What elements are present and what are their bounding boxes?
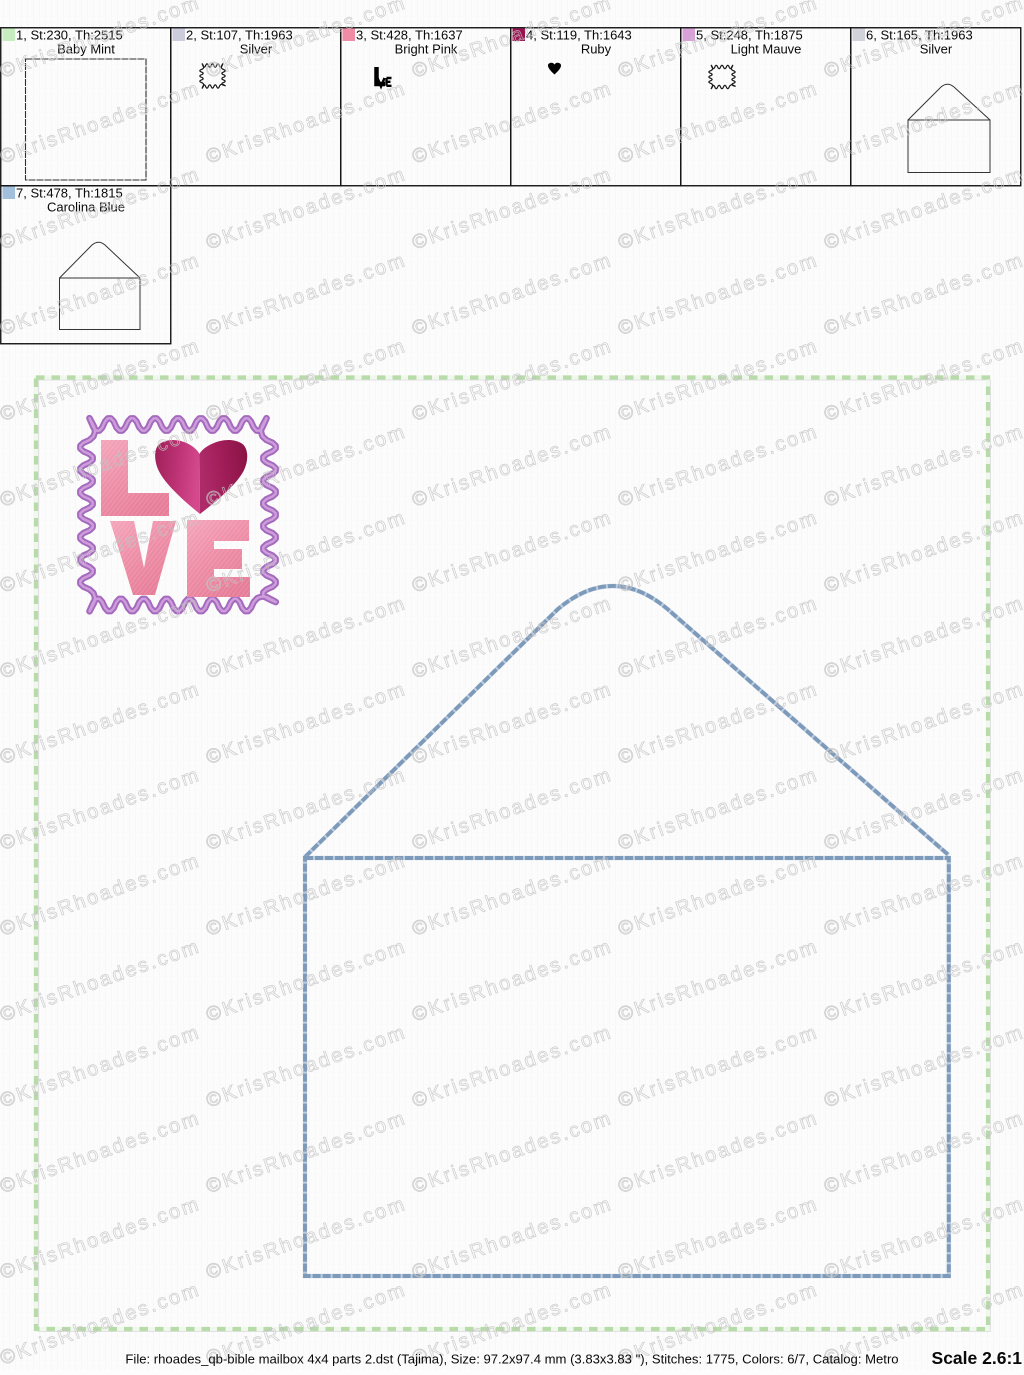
svg-text:Ruby: Ruby: [581, 42, 612, 57]
svg-text:File: rhoades_qb-bible mailbox: File: rhoades_qb-bible mailbox 4x4 parts…: [125, 1352, 898, 1367]
svg-text:Light Mauve: Light Mauve: [731, 42, 802, 57]
svg-text:Scale 2.6:1: Scale 2.6:1: [932, 1348, 1023, 1368]
svg-text:3, St:428, Th:1637: 3, St:428, Th:1637: [356, 28, 463, 43]
